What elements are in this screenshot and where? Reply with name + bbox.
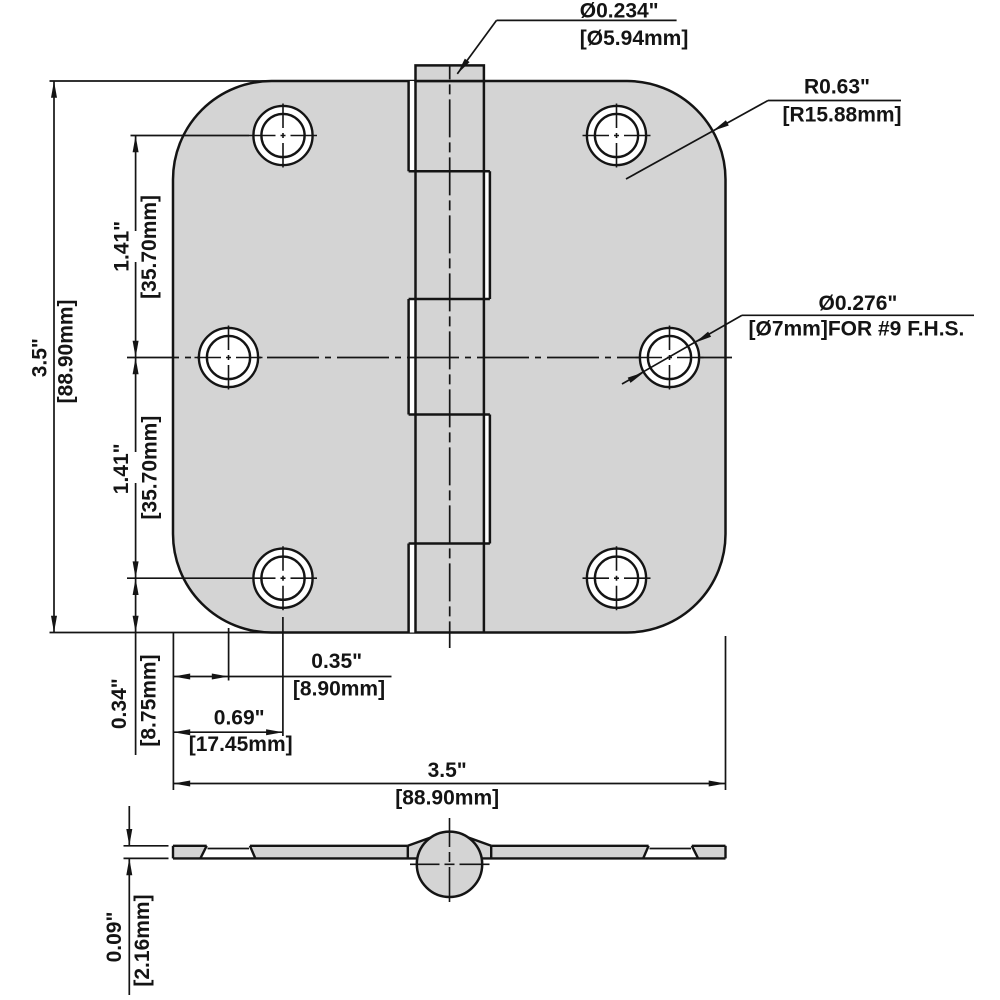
svg-text:[2.16mm]: [2.16mm]: [131, 894, 154, 986]
svg-text:[88.90mm]: [88.90mm]: [55, 299, 78, 403]
svg-text:0.35": 0.35": [311, 650, 362, 673]
svg-text:[35.70mm]: [35.70mm]: [138, 416, 161, 520]
svg-text:0.09": 0.09": [103, 912, 126, 963]
svg-text:[17.45mm]: [17.45mm]: [189, 733, 293, 756]
svg-text:0.34": 0.34": [108, 678, 131, 729]
svg-text:1.41": 1.41": [110, 443, 133, 494]
svg-text:R0.63": R0.63": [804, 76, 870, 99]
svg-text:Ø0.234": Ø0.234": [580, 0, 659, 22]
svg-text:3.5": 3.5": [28, 338, 51, 377]
svg-text:[8.75mm]: [8.75mm]: [138, 654, 161, 746]
svg-text:[88.90mm]: [88.90mm]: [395, 787, 499, 810]
svg-text:Ø0.276": Ø0.276": [819, 292, 898, 315]
svg-text:[R15.88mm]: [R15.88mm]: [783, 104, 902, 127]
svg-text:0.69": 0.69": [214, 707, 265, 730]
svg-text:[Ø7mm]FOR #9 F.H.S.: [Ø7mm]FOR #9 F.H.S.: [749, 318, 965, 341]
svg-text:1.41": 1.41": [110, 221, 133, 272]
svg-text:[35.70mm]: [35.70mm]: [138, 195, 161, 299]
svg-text:3.5": 3.5": [428, 759, 467, 782]
svg-text:[Ø5.94mm]: [Ø5.94mm]: [580, 27, 689, 50]
svg-text:[8.90mm]: [8.90mm]: [293, 678, 385, 701]
